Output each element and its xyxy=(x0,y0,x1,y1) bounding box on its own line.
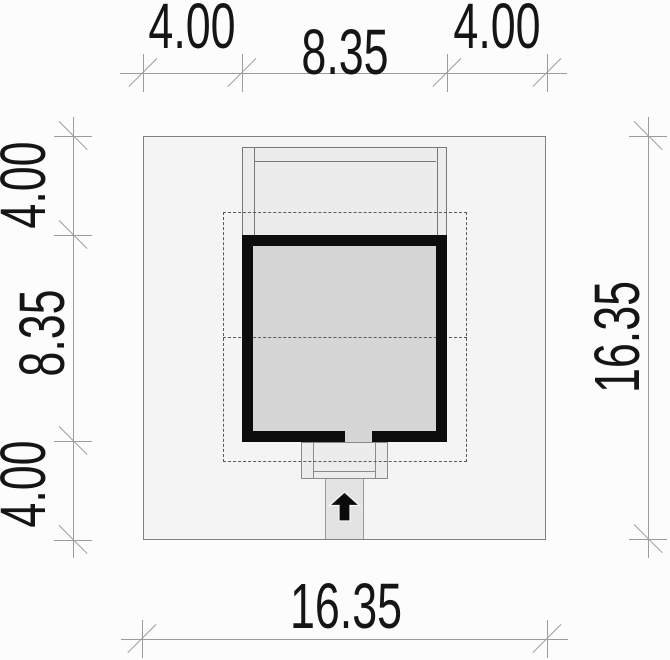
wall-bottom-left-of-door xyxy=(242,431,345,442)
wall-bottom-right-of-door xyxy=(372,431,447,442)
dimension-label-left-top: 4.00 xyxy=(0,141,55,228)
porch-step-line xyxy=(313,471,376,472)
house-footprint xyxy=(242,235,447,442)
dimension-label-bottom-total: 16.35 xyxy=(290,574,402,638)
roof-ridge-dashed-line xyxy=(223,337,467,338)
roof-eaves-line xyxy=(254,161,436,162)
dimension-label-top-left: 4.00 xyxy=(148,0,235,58)
site-plan: 4.00 8.35 4.00 4.00 8.35 4.00 16.35 16.3… xyxy=(0,0,670,660)
entrance-arrow-icon xyxy=(328,491,361,522)
dimension-label-top-middle: 8.35 xyxy=(301,20,388,84)
dimension-label-left-middle: 8.35 xyxy=(10,289,74,376)
dimension-label-right-total: 16.35 xyxy=(585,281,649,393)
wall-top xyxy=(242,235,447,246)
wall-left xyxy=(242,235,253,442)
wall-right xyxy=(436,235,447,442)
dimension-label-top-right: 4.00 xyxy=(453,0,540,58)
dimension-label-left-bottom: 4.00 xyxy=(0,440,55,527)
